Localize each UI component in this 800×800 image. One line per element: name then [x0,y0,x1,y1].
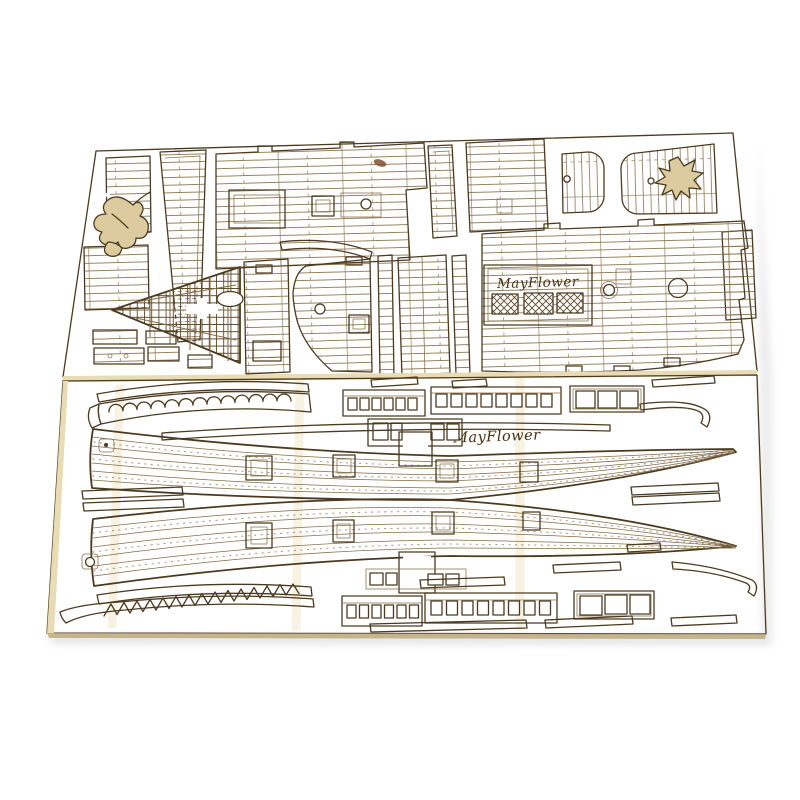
oval-cutout [217,292,243,307]
main-deck-piece [216,142,427,273]
quarterdeck-panel-right [621,144,717,214]
mid-piece-b [398,255,450,376]
mast-hole [604,285,615,296]
engraving-mayflower-upper: MayFlower [496,274,580,292]
hole-cutout [86,558,95,567]
mast-hole [361,199,371,209]
small-hole [648,178,654,184]
mid-strip-a [378,255,394,377]
lattice-windows [492,293,583,314]
engraving-mayflower-lower: MayFlower [452,427,542,446]
stern-deck-piece: MayFlower [482,219,748,374]
quarterdeck-panel-left [562,152,604,213]
lower-sheet-side-bottom [47,633,766,639]
small-hole [564,176,570,182]
deck-strips-mid [428,139,548,238]
product-photo: MayFlower MayFlower [0,0,800,800]
mast-hole [315,304,325,314]
kit-photo-canvas: MayFlower MayFlower [0,0,800,800]
